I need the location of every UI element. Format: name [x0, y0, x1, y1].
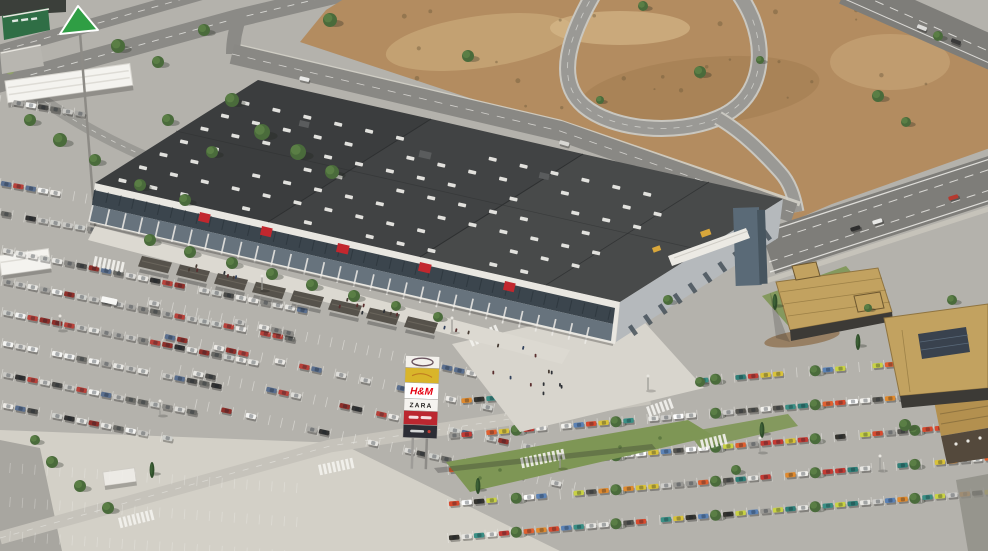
terrace-table	[978, 436, 981, 439]
shrub	[658, 436, 662, 440]
panel-top-logo	[405, 355, 439, 368]
terrace-table	[966, 439, 969, 442]
shrub	[498, 468, 502, 472]
zara-logo-text: ZARA	[409, 402, 432, 410]
panel-brand-red	[403, 410, 437, 425]
red-brand-mark	[409, 416, 419, 419]
hm-logo-text: H&M	[410, 386, 434, 398]
red-brand-mark	[421, 416, 432, 419]
pylon-pole	[412, 436, 413, 469]
scene-svg: H&M ZARA	[0, 0, 988, 551]
pylon-pole	[426, 436, 427, 469]
dark-brand-mark	[410, 430, 424, 433]
aerial-render: H&M ZARA	[0, 0, 988, 551]
terrace-table	[954, 442, 957, 445]
panel-brand-yellow	[405, 367, 440, 383]
